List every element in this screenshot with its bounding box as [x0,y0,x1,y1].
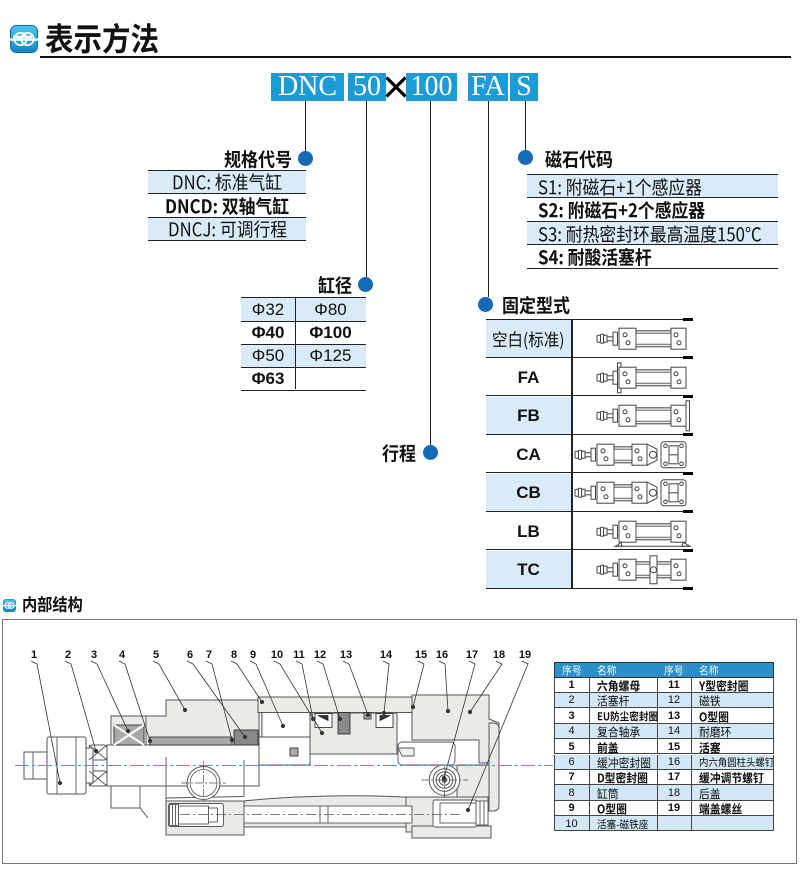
svg-text:7: 7 [206,649,212,661]
svg-text:19: 19 [519,649,531,661]
svg-text:16: 16 [436,649,448,661]
svg-text:10: 10 [271,649,283,661]
svg-text:5: 5 [153,649,159,661]
svg-text:11: 11 [293,649,305,661]
svg-text:18: 18 [493,649,505,661]
svg-text:14: 14 [380,649,393,661]
svg-text:4: 4 [119,649,126,661]
svg-text:1: 1 [31,649,37,661]
svg-text:6: 6 [187,649,193,661]
svg-text:3: 3 [91,649,97,661]
svg-text:12: 12 [314,649,326,661]
svg-text:17: 17 [466,649,478,661]
svg-text:13: 13 [340,649,352,661]
svg-text:2: 2 [65,649,71,661]
svg-text:9: 9 [250,649,256,661]
svg-text:15: 15 [415,649,427,661]
svg-text:8: 8 [231,649,237,661]
